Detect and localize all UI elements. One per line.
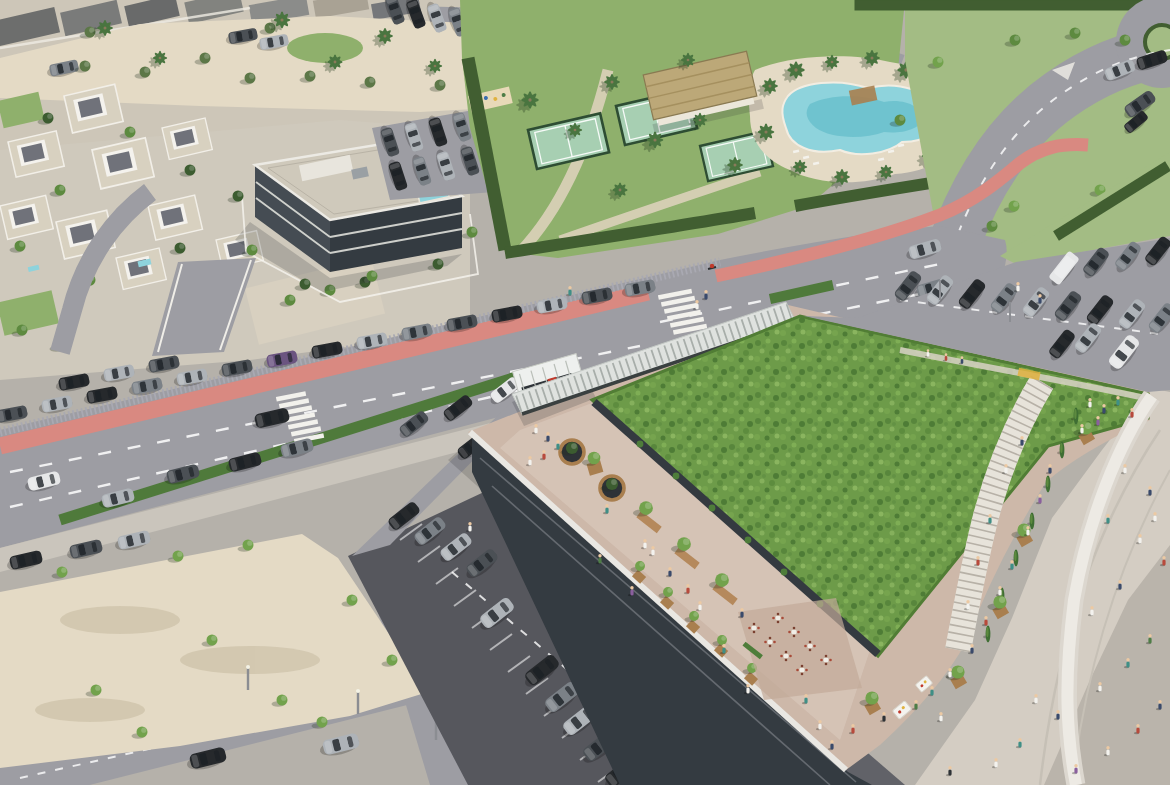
grass-oval [287,33,363,63]
aerial-render [0,0,1170,785]
top-hedge [855,0,1170,10]
scene-canvas [0,0,1170,785]
